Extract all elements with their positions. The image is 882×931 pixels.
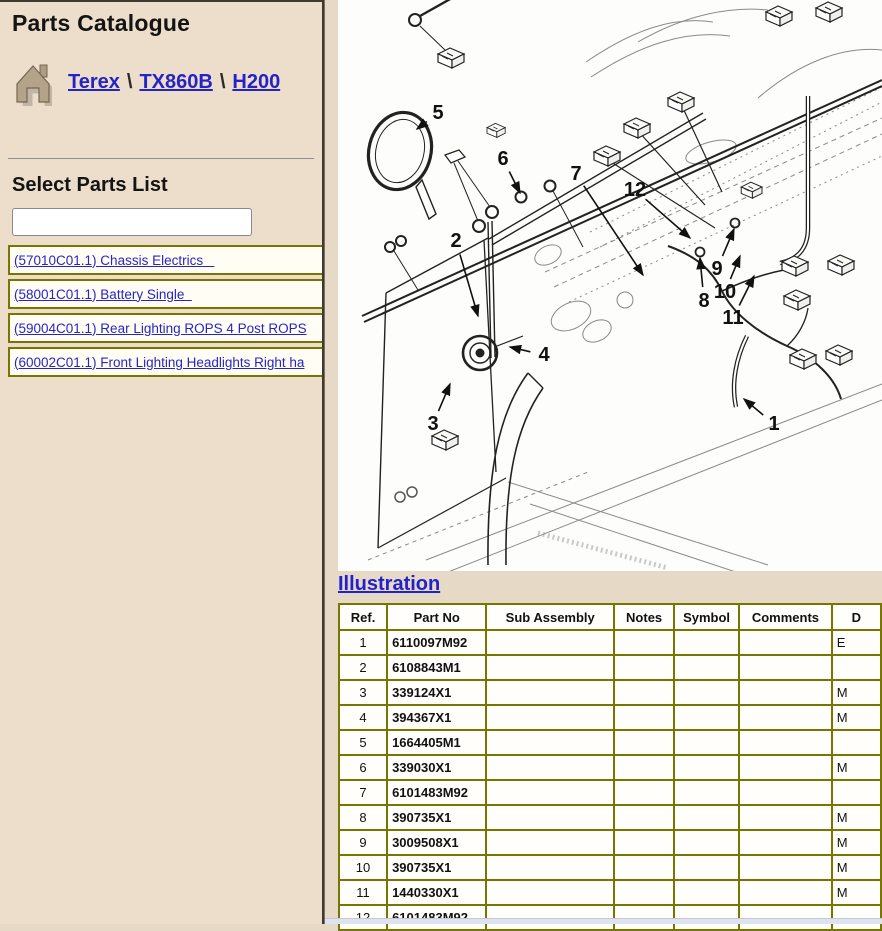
symbol-cell bbox=[674, 880, 739, 905]
sub-assembly-cell bbox=[486, 830, 614, 855]
description-cell bbox=[832, 730, 881, 755]
ref-cell: 8 bbox=[339, 805, 387, 830]
table-row: 26108843M1 bbox=[339, 655, 881, 680]
column-header: Sub Assembly bbox=[486, 604, 614, 630]
description-cell: M bbox=[832, 680, 881, 705]
parts-list-item: (60002C01.1) Front Lighting Headlights R… bbox=[8, 347, 322, 377]
notes-cell bbox=[614, 780, 674, 805]
breadcrumb-link-h200[interactable]: H200 bbox=[232, 71, 280, 93]
sub-assembly-cell bbox=[486, 680, 614, 705]
home-icon[interactable] bbox=[10, 58, 52, 106]
part-no-cell: 339030X1 bbox=[387, 755, 486, 780]
part-no-cell: 6108843M1 bbox=[387, 655, 486, 680]
sub-assembly-cell bbox=[486, 780, 614, 805]
symbol-cell bbox=[674, 830, 739, 855]
table-row: 51664405M1 bbox=[339, 730, 881, 755]
diagram-callout-12: 12 bbox=[624, 179, 646, 201]
part-no-cell: 6101483M92 bbox=[387, 780, 486, 805]
table-row: 76101483M92 bbox=[339, 780, 881, 805]
diagram-callout-5: 5 bbox=[432, 102, 443, 124]
ref-cell: 3 bbox=[339, 680, 387, 705]
comments-cell bbox=[739, 830, 832, 855]
illustration-link[interactable]: Illustration bbox=[338, 573, 440, 595]
parts-list-link-3[interactable]: (60002C01.1) Front Lighting Headlights R… bbox=[10, 355, 304, 370]
comments-cell bbox=[739, 705, 832, 730]
notes-cell bbox=[614, 705, 674, 730]
column-header: Comments bbox=[739, 604, 832, 630]
column-header: Ref. bbox=[339, 604, 387, 630]
diagram-callout-9: 9 bbox=[711, 258, 722, 280]
description-cell bbox=[832, 780, 881, 805]
sub-assembly-cell bbox=[486, 630, 614, 655]
illustration-panel: 123456789101112 bbox=[338, 0, 882, 571]
sub-assembly-cell bbox=[486, 855, 614, 880]
description-cell: E bbox=[832, 630, 881, 655]
description-cell: M bbox=[832, 830, 881, 855]
sub-assembly-cell bbox=[486, 655, 614, 680]
comments-cell bbox=[739, 805, 832, 830]
ref-cell: 11 bbox=[339, 880, 387, 905]
notes-cell bbox=[614, 755, 674, 780]
diagram-callout-4: 4 bbox=[538, 344, 550, 366]
illustration-heading: Illustration bbox=[338, 573, 440, 596]
sub-assembly-cell bbox=[486, 755, 614, 780]
column-header: Symbol bbox=[674, 604, 739, 630]
diagram-callout-2: 2 bbox=[450, 230, 461, 252]
description-cell bbox=[832, 655, 881, 680]
part-no-cell: 339124X1 bbox=[387, 680, 486, 705]
page-title: Parts Catalogue bbox=[12, 10, 190, 37]
sub-assembly-cell bbox=[486, 705, 614, 730]
sidebar: Parts Catalogue Terex\TX860B\H200 Select… bbox=[0, 0, 322, 924]
notes-cell bbox=[614, 655, 674, 680]
table-row: 111440330X1M bbox=[339, 880, 881, 905]
ref-cell: 2 bbox=[339, 655, 387, 680]
comments-cell bbox=[739, 880, 832, 905]
sub-assembly-cell bbox=[486, 730, 614, 755]
parts-list-item: (57010C01.1) Chassis Electrics bbox=[8, 245, 322, 275]
parts-list: (57010C01.1) Chassis Electrics (58001C01… bbox=[0, 245, 322, 381]
table-row: 8390735X1M bbox=[339, 805, 881, 830]
ref-cell: 4 bbox=[339, 705, 387, 730]
table-row: 10390735X1M bbox=[339, 855, 881, 880]
symbol-cell bbox=[674, 780, 739, 805]
horizontal-scrollbar[interactable] bbox=[325, 918, 882, 924]
parts-list-item: (58001C01.1) Battery Single bbox=[8, 279, 322, 309]
breadcrumb-links: Terex\TX860B\H200 bbox=[68, 71, 280, 94]
notes-cell bbox=[614, 680, 674, 705]
part-no-cell: 1440330X1 bbox=[387, 880, 486, 905]
description-cell: M bbox=[832, 880, 881, 905]
parts-list-link-0[interactable]: (57010C01.1) Chassis Electrics bbox=[10, 253, 214, 268]
part-no-cell: 394367X1 bbox=[387, 705, 486, 730]
diagram-callout-7: 7 bbox=[570, 163, 581, 185]
part-no-cell: 1664405M1 bbox=[387, 730, 486, 755]
parts-list-link-2[interactable]: (59004C01.1) Rear Lighting ROPS 4 Post R… bbox=[10, 321, 307, 336]
notes-cell bbox=[614, 830, 674, 855]
part-no-cell: 3009508X1 bbox=[387, 830, 486, 855]
breadcrumb-separator: \ bbox=[220, 71, 226, 93]
part-no-cell: 6110097M92 bbox=[387, 630, 486, 655]
comments-cell bbox=[739, 755, 832, 780]
notes-cell bbox=[614, 630, 674, 655]
table-row: 4394367X1M bbox=[339, 705, 881, 730]
table-row: 16110097M92E bbox=[339, 630, 881, 655]
sidebar-main-divider bbox=[322, 0, 325, 924]
comments-cell bbox=[739, 855, 832, 880]
breadcrumb-link-terex[interactable]: Terex bbox=[68, 71, 120, 93]
comments-cell bbox=[739, 655, 832, 680]
ref-cell: 1 bbox=[339, 630, 387, 655]
symbol-cell bbox=[674, 755, 739, 780]
symbol-cell bbox=[674, 805, 739, 830]
notes-cell bbox=[614, 730, 674, 755]
table-header-row: Ref.Part NoSub AssemblyNotesSymbolCommen… bbox=[339, 604, 881, 630]
diagram-callout-11: 11 bbox=[722, 307, 743, 329]
breadcrumb-separator: \ bbox=[127, 71, 133, 93]
wiring-harness-illustration: 123456789101112 bbox=[338, 0, 882, 571]
comments-cell bbox=[739, 730, 832, 755]
symbol-cell bbox=[674, 855, 739, 880]
symbol-cell bbox=[674, 680, 739, 705]
ref-cell: 10 bbox=[339, 855, 387, 880]
description-cell: M bbox=[832, 805, 881, 830]
symbol-cell bbox=[674, 705, 739, 730]
table-row: 3339124X1M bbox=[339, 680, 881, 705]
diagram-callout-10: 10 bbox=[714, 281, 736, 303]
table-row: 93009508X1M bbox=[339, 830, 881, 855]
description-cell: M bbox=[832, 855, 881, 880]
diagram-callout-1: 1 bbox=[768, 413, 779, 435]
parts-filter-input[interactable] bbox=[12, 208, 252, 236]
symbol-cell bbox=[674, 655, 739, 680]
parts-table: Ref.Part NoSub AssemblyNotesSymbolCommen… bbox=[338, 603, 882, 931]
ref-cell: 5 bbox=[339, 730, 387, 755]
sub-assembly-cell bbox=[486, 805, 614, 830]
column-header: Notes bbox=[614, 604, 674, 630]
diagram-callout-6: 6 bbox=[497, 148, 508, 170]
ref-cell: 7 bbox=[339, 780, 387, 805]
parts-list-item: (59004C01.1) Rear Lighting ROPS 4 Post R… bbox=[8, 313, 322, 343]
description-cell: M bbox=[832, 755, 881, 780]
table-row: 6339030X1M bbox=[339, 755, 881, 780]
breadcrumb: Terex\TX860B\H200 bbox=[10, 58, 280, 106]
symbol-cell bbox=[674, 730, 739, 755]
sidebar-divider-line bbox=[8, 158, 314, 159]
select-parts-heading: Select Parts List bbox=[12, 174, 168, 197]
symbol-cell bbox=[674, 630, 739, 655]
notes-cell bbox=[614, 855, 674, 880]
breadcrumb-link-tx860b[interactable]: TX860B bbox=[139, 71, 212, 93]
diagram-callout-3: 3 bbox=[427, 413, 438, 435]
column-header: Part No bbox=[387, 604, 486, 630]
diagram-callout-8: 8 bbox=[698, 290, 709, 312]
comments-cell bbox=[739, 780, 832, 805]
column-header: D bbox=[832, 604, 881, 630]
sub-assembly-cell bbox=[486, 880, 614, 905]
comments-cell bbox=[739, 630, 832, 655]
parts-list-link-1[interactable]: (58001C01.1) Battery Single bbox=[10, 287, 192, 302]
part-no-cell: 390735X1 bbox=[387, 855, 486, 880]
notes-cell bbox=[614, 805, 674, 830]
ref-cell: 9 bbox=[339, 830, 387, 855]
notes-cell bbox=[614, 880, 674, 905]
parts-table-wrap: Ref.Part NoSub AssemblyNotesSymbolCommen… bbox=[338, 603, 882, 931]
comments-cell bbox=[739, 680, 832, 705]
part-no-cell: 390735X1 bbox=[387, 805, 486, 830]
description-cell: M bbox=[832, 705, 881, 730]
ref-cell: 6 bbox=[339, 755, 387, 780]
